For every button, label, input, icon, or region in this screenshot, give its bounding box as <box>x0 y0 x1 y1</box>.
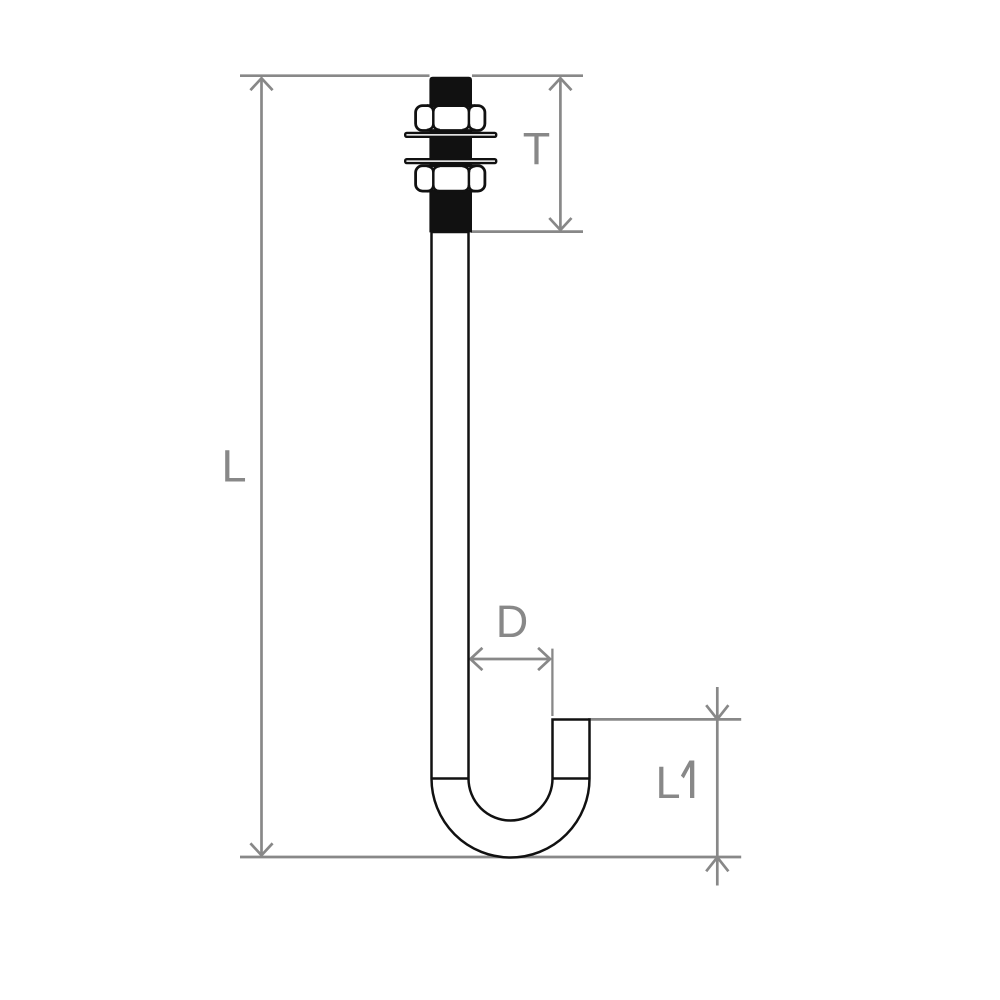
svg-text:T: T <box>523 124 551 175</box>
svg-text:L: L <box>656 757 681 808</box>
svg-text:L: L <box>222 441 247 492</box>
svg-text:D: D <box>496 596 529 647</box>
